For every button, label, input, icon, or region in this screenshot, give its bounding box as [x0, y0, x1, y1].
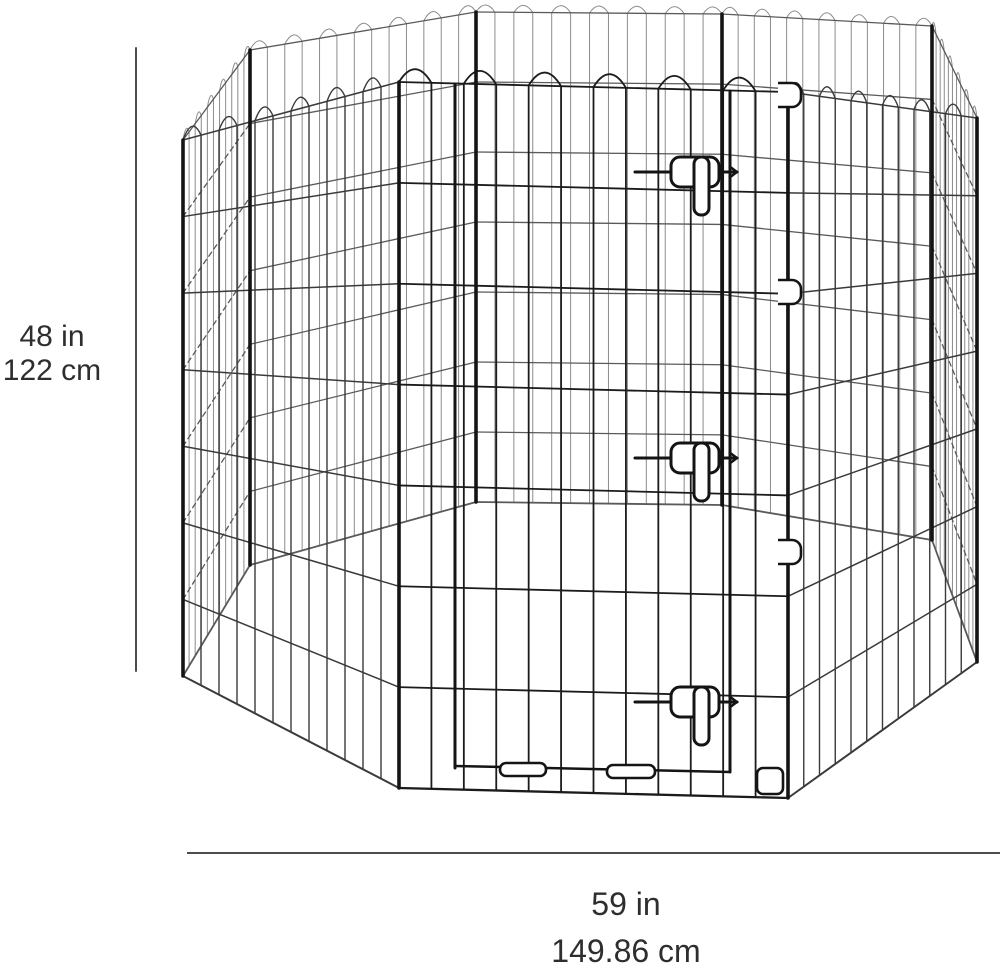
- width-dimension-line: [187, 852, 1000, 854]
- width-centimeters: 149.86 cm: [426, 928, 826, 964]
- door-hinge-clip: [778, 83, 801, 107]
- door-hinge-clip: [778, 540, 801, 564]
- height-dimension-line: [135, 47, 137, 672]
- height-centimeters: 122 cm: [0, 354, 104, 388]
- pen-foot: [757, 768, 783, 794]
- height-inches: 48 in: [0, 320, 104, 354]
- pen-panel-front-left: [183, 78, 399, 788]
- pen-panel-left-side: [183, 46, 250, 676]
- product-dimension-figure: 48 in 122 cm 59 in 149.86 cm: [0, 0, 1000, 964]
- pen-foot: [500, 763, 546, 776]
- width-dimension-label: 59 in 149.86 cm: [426, 881, 826, 964]
- pen-foot: [607, 765, 655, 778]
- width-inches: 59 in: [426, 881, 826, 928]
- playpen-illustration: [0, 0, 1000, 964]
- door-hinge-clip: [778, 280, 801, 304]
- height-dimension-label: 48 in 122 cm: [0, 320, 104, 388]
- pen-panel-right-side: [932, 22, 977, 662]
